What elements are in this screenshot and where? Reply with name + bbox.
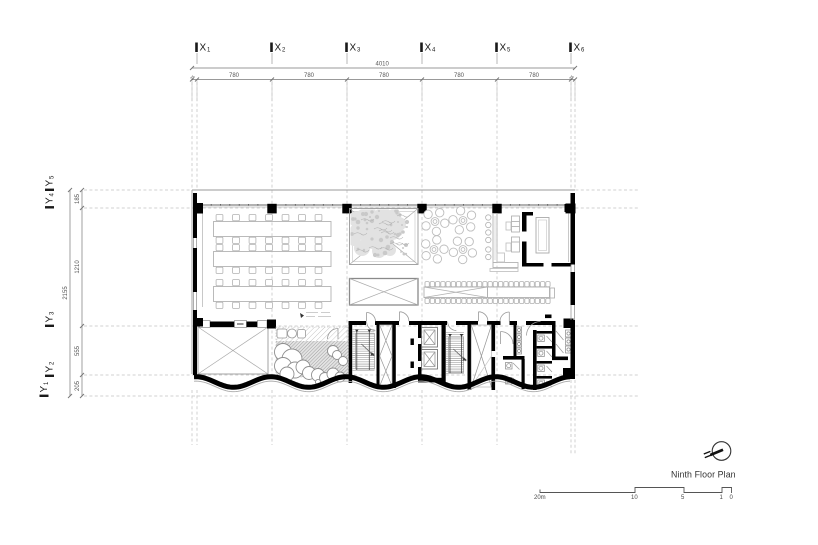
svg-text:Y: Y [45, 180, 56, 187]
svg-text:1210: 1210 [75, 260, 81, 274]
svg-text:20m: 20m [534, 495, 546, 501]
svg-text:780: 780 [454, 73, 465, 79]
svg-text:780: 780 [229, 73, 240, 79]
svg-text:205: 205 [75, 380, 81, 391]
svg-text:780: 780 [304, 73, 315, 79]
svg-text:555: 555 [75, 345, 81, 356]
svg-text:185: 185 [75, 193, 81, 204]
svg-text:2155: 2155 [63, 286, 69, 300]
svg-text:Y: Y [39, 386, 50, 393]
svg-text:Y: Y [45, 366, 56, 373]
svg-text:780: 780 [379, 73, 390, 79]
svg-text:X: X [200, 43, 207, 54]
svg-text:X: X [425, 43, 432, 54]
svg-text:X: X [350, 43, 357, 54]
svg-text:4010: 4010 [376, 62, 390, 68]
svg-text:10: 10 [631, 495, 638, 501]
svg-text:Ninth Floor Plan: Ninth Floor Plan [671, 470, 736, 480]
svg-text:X: X [500, 43, 507, 54]
svg-text:X: X [574, 43, 581, 54]
svg-text:Y: Y [45, 197, 56, 204]
svg-text:Y: Y [45, 316, 56, 323]
svg-text:780: 780 [529, 73, 540, 79]
svg-text:X: X [275, 43, 282, 54]
